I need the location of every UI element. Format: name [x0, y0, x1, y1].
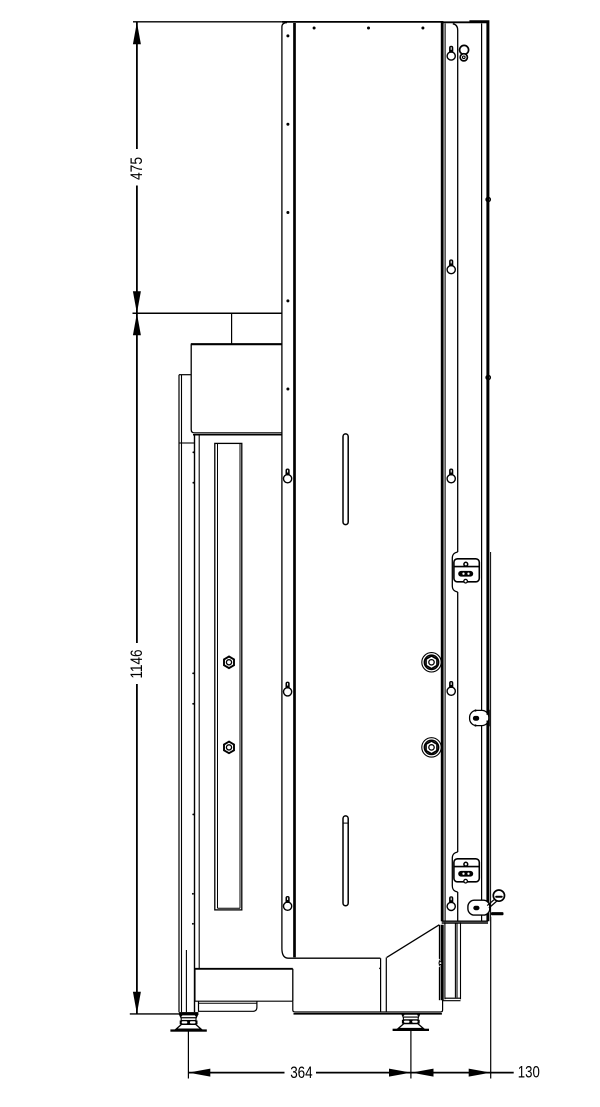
- svg-text:364: 364: [290, 1063, 313, 1082]
- svg-text:130: 130: [518, 1063, 540, 1082]
- svg-text:475: 475: [127, 157, 146, 180]
- svg-text:1146: 1146: [127, 650, 146, 679]
